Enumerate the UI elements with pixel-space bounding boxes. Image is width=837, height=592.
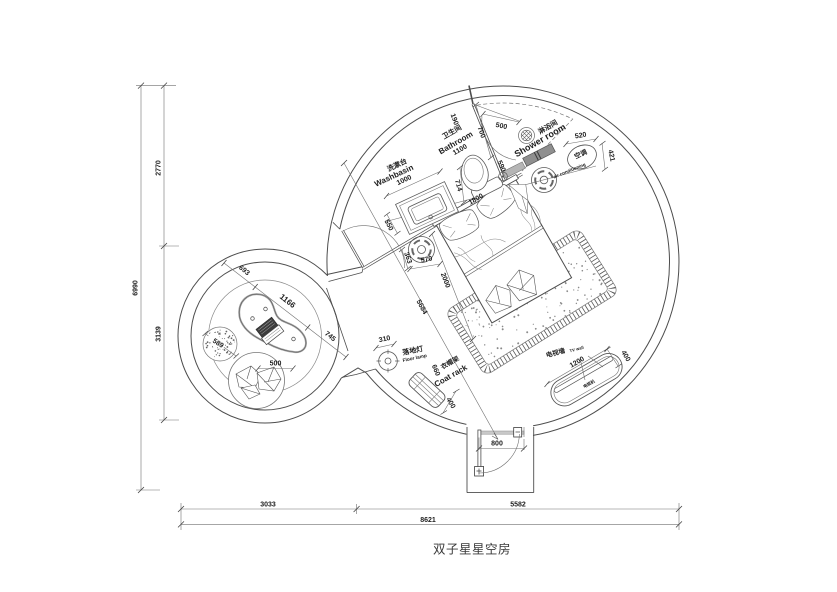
svg-text:800: 800 <box>491 441 503 448</box>
svg-text:8621: 8621 <box>420 517 436 524</box>
svg-text:2770: 2770 <box>156 160 163 176</box>
svg-text:6990: 6990 <box>133 280 140 296</box>
svg-text:5582: 5582 <box>510 502 526 509</box>
svg-text:3139: 3139 <box>156 326 163 342</box>
svg-text:3033: 3033 <box>260 502 276 509</box>
svg-text:双子星星空房: 双子星星空房 <box>433 542 511 557</box>
svg-text:500: 500 <box>270 361 282 368</box>
